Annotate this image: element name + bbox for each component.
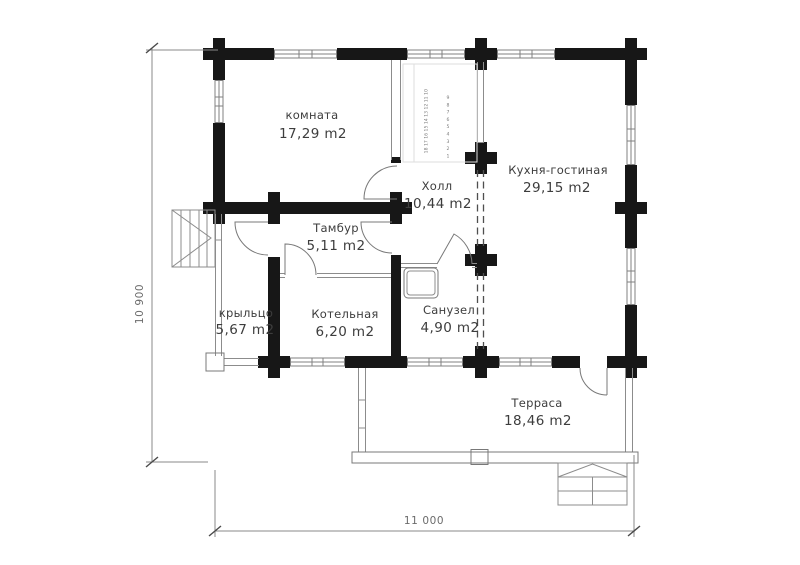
stair-step-number: 17	[424, 140, 430, 146]
room-name-terrasa: Терраса	[510, 396, 562, 410]
window	[626, 105, 637, 165]
room-name-holl: Холл	[422, 179, 453, 193]
stair-step-number: 16	[424, 133, 430, 139]
room-area-terrasa: 18,46 m2	[504, 413, 572, 429]
door-arc-porch-tambur	[235, 222, 268, 255]
window	[214, 80, 225, 123]
shower-tray-inner	[407, 271, 435, 295]
room-area-komnata: 17,29 m2	[279, 126, 347, 142]
stair-step-number: 4	[447, 132, 450, 138]
floor-plan-page: 101112131415161718 987654321 10 900 11 0…	[0, 0, 800, 565]
log-joint-cross	[615, 192, 647, 224]
room-name-tambur: Тамбур	[312, 221, 359, 235]
stair-lower-flight-numbers: 987654321	[447, 95, 450, 159]
fixtures	[404, 268, 438, 298]
log-joint-cross	[203, 192, 235, 224]
log-joint-cross	[203, 38, 235, 70]
stair-step-number: 15	[424, 126, 430, 132]
window	[407, 49, 465, 60]
stair-upper-flight-numbers: 101112131415161718	[424, 89, 430, 153]
stair-step-number: 2	[447, 146, 450, 152]
window	[407, 357, 463, 368]
log-joint-cross	[615, 38, 647, 70]
room-name-komnata: комната	[285, 108, 338, 122]
room-name-sanuzel: Санузел	[423, 303, 475, 317]
stair-step-number: 13	[424, 111, 430, 117]
room-area-holl: 10,44 m2	[404, 196, 472, 212]
terrace-deck-edge	[352, 452, 638, 463]
log-joint-cross	[465, 38, 497, 70]
stair-step-number: 8	[447, 102, 450, 108]
entry-steps	[172, 210, 215, 267]
dimension-height-label: 10 900	[134, 284, 146, 324]
room-name-kitchen: Кухня-гостиная	[508, 163, 608, 177]
stair-step-number: 11	[424, 96, 430, 102]
stair-step-number: 1	[447, 153, 450, 159]
stair-step-number: 10	[424, 89, 430, 95]
door-arc-tambur-holl	[361, 222, 392, 253]
stair-step-number: 18	[424, 147, 430, 153]
stair-step-number: 5	[447, 124, 450, 130]
log-joint-cross	[615, 346, 647, 378]
room-area-kitchen: 29,15 m2	[523, 180, 591, 196]
log-joint-cross	[465, 346, 497, 378]
stair-step-number: 9	[447, 95, 450, 101]
room-area-kotelnaya: 6,20 m2	[316, 324, 375, 340]
window	[499, 357, 552, 368]
internal-stair: 101112131415161718 987654321	[403, 64, 477, 162]
room-name-kotelnaya: Котельная	[311, 307, 378, 321]
room-area-tambur: 5,11 m2	[307, 238, 366, 254]
terrace-steps	[558, 463, 627, 505]
log-joint-cross	[258, 192, 290, 224]
dimension-width-label: 11 000	[404, 515, 444, 527]
room-area-krylco: 5,67 m2	[216, 322, 275, 338]
room-area-sanuzel: 4,90 m2	[421, 320, 480, 336]
window	[497, 49, 555, 60]
log-joint-cross	[258, 346, 290, 378]
stair-step-number: 14	[424, 118, 430, 124]
shower-tray	[404, 268, 438, 298]
stair-step-number: 3	[447, 139, 450, 145]
log-joint-cross	[465, 142, 497, 174]
log-joint-cross	[465, 244, 497, 276]
terrace-structure	[352, 368, 638, 465]
floor-plan-drawing: 101112131415161718 987654321 10 900 11 0…	[0, 0, 800, 565]
window	[274, 49, 337, 60]
room-name-krylco: крыльцо	[219, 306, 273, 320]
stair-step-number: 12	[424, 104, 430, 110]
door-arc-terrace	[580, 368, 607, 395]
window	[626, 248, 637, 305]
stair-step-number: 7	[447, 110, 450, 116]
window	[290, 357, 345, 368]
stair-step-number: 6	[447, 117, 450, 123]
